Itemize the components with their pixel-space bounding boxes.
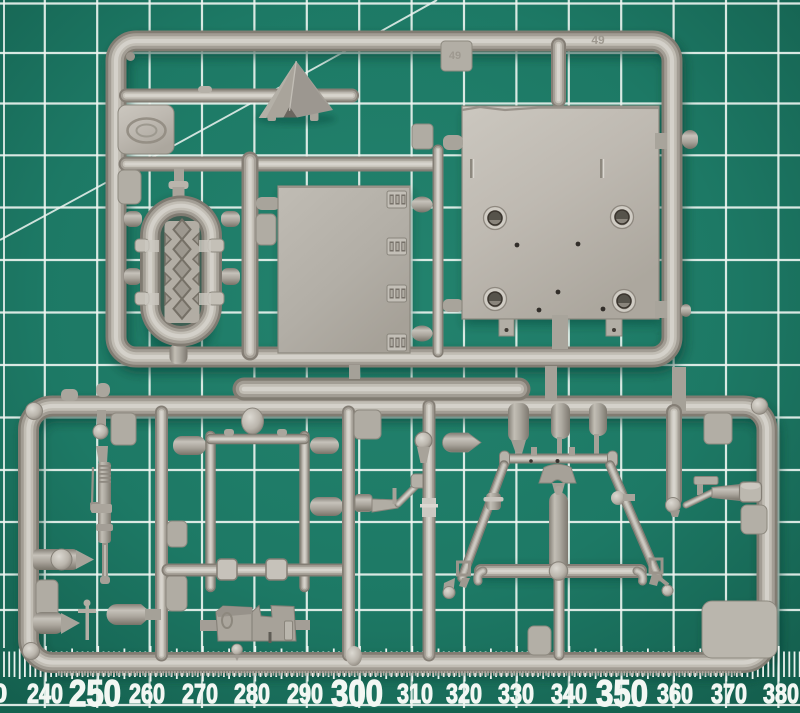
svg-text:370: 370	[711, 678, 747, 708]
svg-text:280: 280	[234, 678, 270, 708]
svg-text:250: 250	[69, 673, 121, 708]
svg-text:270: 270	[182, 678, 218, 708]
svg-text:49: 49	[591, 33, 605, 47]
svg-text:300: 300	[331, 673, 383, 708]
svg-text:260: 260	[129, 678, 165, 708]
svg-text:240: 240	[27, 678, 63, 708]
svg-text:320: 320	[446, 678, 482, 708]
svg-text:340: 340	[551, 678, 587, 708]
svg-text:360: 360	[657, 678, 693, 708]
svg-text:310: 310	[397, 678, 433, 708]
svg-text:290: 290	[287, 678, 323, 708]
svg-text:380: 380	[763, 678, 799, 708]
svg-text:330: 330	[498, 678, 534, 708]
svg-text:350: 350	[596, 673, 648, 708]
svg-text:0: 0	[0, 678, 7, 708]
svg-text:49: 49	[449, 50, 461, 62]
